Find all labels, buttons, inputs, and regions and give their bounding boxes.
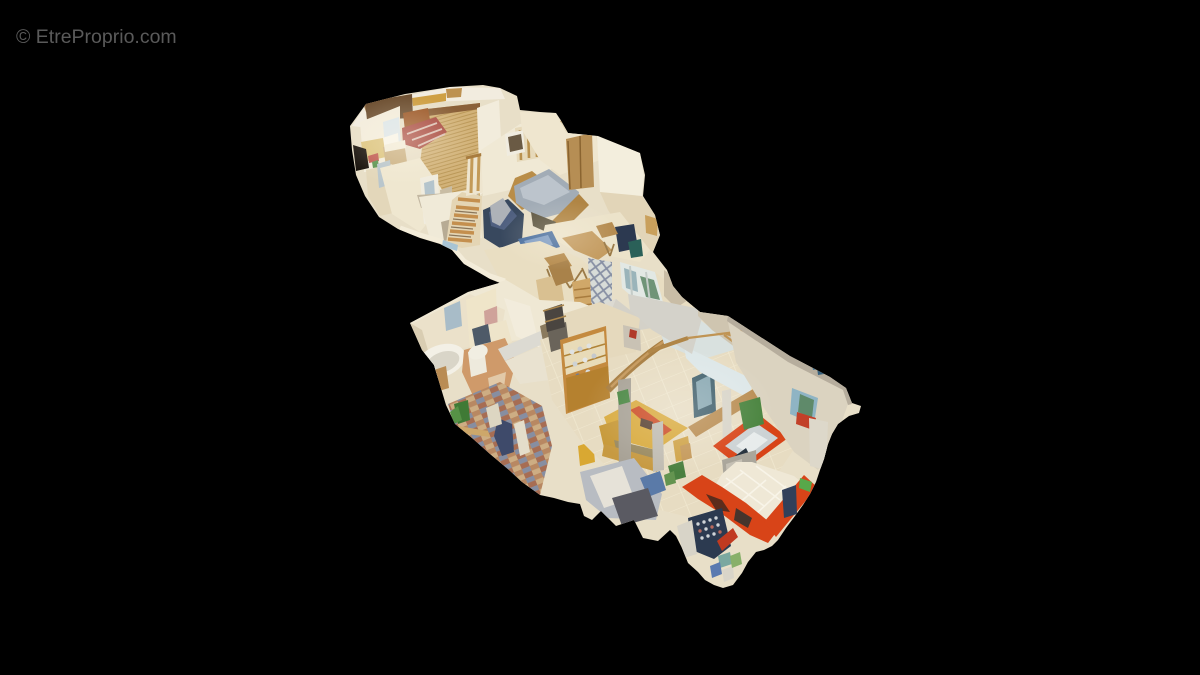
svg-text:© EtreProprio.com: © EtreProprio.com	[16, 26, 177, 48]
